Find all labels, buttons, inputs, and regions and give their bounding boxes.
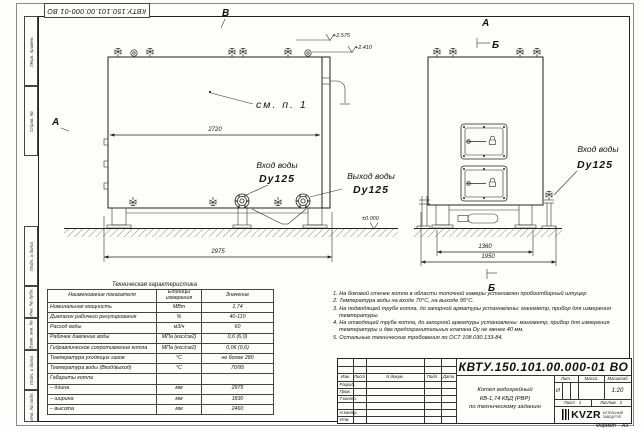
tb-lit-label: Лит.	[554, 375, 578, 382]
front-inlet-dn: Dy125	[259, 173, 295, 185]
front-view: 2720 2975 +2.575 +2.410 ±0.000 В А	[51, 8, 398, 262]
dim-2975: 2975	[210, 249, 225, 255]
front-outlet-label: Выход воды	[347, 171, 396, 181]
tb-col-podp: Подп.	[424, 373, 441, 380]
spec-row: Температура уходящих газов°Сне более 280	[48, 353, 274, 363]
tb-sheet: Лист1	[554, 399, 591, 406]
view-mark-a-top: А	[481, 18, 489, 29]
note-item: 1. На боковой стенке котла в области топ…	[333, 291, 630, 298]
company-name: КОТЕЛЬНЫЙ ЗАВОД РЭП	[603, 411, 623, 419]
doc-number: КВТУ.150.101.00.000-01 ВО	[456, 359, 631, 375]
spec-row: Габариты котла	[48, 374, 274, 384]
elev-0000: ±0.000	[362, 216, 380, 222]
product-name: Котел водогрейный КВ-1,74 КБД (РВР) по т…	[456, 375, 554, 423]
tb-mass-label: Масса	[578, 375, 604, 382]
spec-table: Наименование показателя Единицы измерени…	[47, 289, 274, 415]
spec-header-name: Наименование показателя	[48, 290, 157, 303]
tb-col-dokum: N докум.	[366, 373, 424, 380]
front-inlet-label: Вход воды	[256, 160, 298, 170]
drawing-sheet: Перв. примен. Справ. № Подп. и дата Инв.…	[0, 0, 644, 430]
title-block: Изм. Лист N докум. Подп. Дата Разраб. Пр…	[337, 358, 632, 424]
tb-scale-value: 1:20	[604, 382, 631, 399]
elev-2410: +2.410	[355, 45, 373, 51]
product-name-line2: КВ-1,74 КБД (РВР)	[480, 395, 530, 404]
tb-row-tkontr: Т.контр.	[338, 395, 368, 402]
see-note-label: см. п. 1	[256, 99, 308, 111]
tb-scale-label: Масштаб	[604, 375, 631, 382]
technical-notes: 1. На боковой стенке котла в области топ…	[333, 291, 630, 342]
front-outlet-dn: Dy125	[353, 184, 389, 196]
note-item: 4. На отводящей трубе котла, до запорной…	[333, 320, 630, 334]
company-logo: KVZR КОТЕЛЬНЫЙ ЗАВОД РЭП	[554, 406, 631, 423]
note-item: 5. Остальные технические требования по О…	[333, 335, 630, 342]
tb-row-utv: Утв.	[338, 416, 368, 423]
spec-row: – ширинамм1830	[48, 394, 274, 404]
spec-row: Номинальная мощностьМВт1,74	[48, 303, 274, 313]
format-label: ФорматА3	[520, 423, 628, 429]
tb-col-list: Лист	[353, 373, 366, 380]
spec-row: Диапазон рабочего регулирования%40-110	[48, 313, 274, 323]
tb-sheets: Листов2	[591, 399, 631, 406]
product-name-line1: Котел водогрейный	[477, 386, 532, 395]
section-mark-b-top: Б	[492, 40, 499, 51]
side-inlet-fitting	[542, 200, 556, 229]
spec-row: – высотамм2460	[48, 404, 274, 414]
spec-row: Температура воды (Вход/выход)°С70/95	[48, 364, 274, 374]
side-view: 1360 1950 А Б Б Вход воды Dy125	[414, 18, 619, 294]
tb-col-data: Дата	[441, 373, 456, 380]
spec-row: Расход водым3/ч60	[48, 323, 274, 333]
spec-header-units: Единицы измерения	[157, 290, 202, 303]
spec-header-row: Наименование показателя Единицы измерени…	[48, 290, 274, 303]
support-frame	[107, 208, 327, 228]
overflow-pipe	[322, 78, 350, 104]
note-item: 2. Температура воды на входе 70°С, на вы…	[333, 298, 630, 305]
product-name-line3: по техническому заданию	[469, 403, 541, 412]
dim-1950: 1950	[481, 254, 495, 260]
spec-row: Рабочее давление водыМПа (кгс/см2)0,6 (6…	[48, 333, 274, 343]
dim-1360: 1360	[478, 244, 492, 250]
logo-bars-icon	[562, 409, 569, 420]
side-inlet-dn: Dy125	[577, 159, 613, 171]
logo-text: KVZR	[571, 409, 601, 421]
note-item: 3. На подводящей трубе котла, до запорно…	[333, 306, 630, 320]
spec-table-title: Техническая характеристика	[47, 282, 262, 288]
side-inlet-label: Вход воды	[577, 144, 619, 154]
spec-row: – длинамм2975	[48, 384, 274, 394]
tb-row-prov: Пров.	[338, 388, 368, 395]
dim-2720: 2720	[207, 127, 222, 133]
view-mark-v: В	[222, 8, 229, 19]
spec-header-value: Значение	[202, 290, 274, 303]
elev-2575: +2.575	[333, 33, 351, 39]
view-mark-a-left: А	[51, 117, 59, 128]
spec-row: Гидравлическое сопротивление котлаМПа (к…	[48, 343, 274, 353]
tb-row-blank	[338, 402, 368, 409]
tb-row-razrab: Разраб.	[338, 381, 368, 388]
tb-row-nkontr: Н.контр.	[338, 409, 368, 416]
tb-lit-value: И	[554, 382, 562, 399]
side-support-frame	[432, 205, 536, 228]
spec-table-block: Техническая характеристика Наименование …	[47, 282, 262, 415]
tb-col-izm: Изм.	[338, 373, 353, 380]
